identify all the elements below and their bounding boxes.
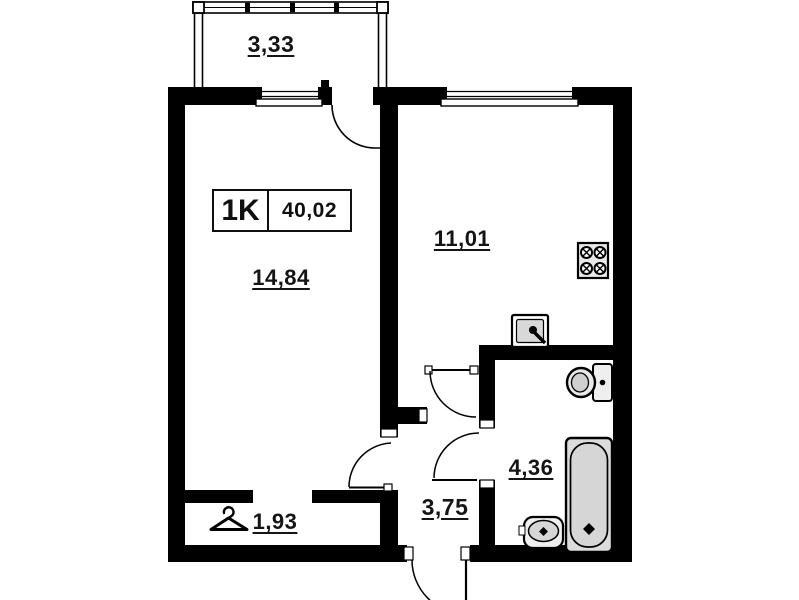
kitchen-sink-icon	[512, 315, 548, 347]
plan-canvas	[0, 0, 799, 600]
toilet-icon	[567, 364, 612, 401]
bathroom-door-swing	[432, 433, 479, 480]
room-label-closet: 1,93	[253, 509, 298, 535]
entrance-door-swing	[412, 560, 466, 600]
room-label-living-room: 14,84	[252, 265, 310, 291]
unit-info-box: 1K 40,02	[212, 189, 352, 232]
unit-total-area: 40,02	[269, 191, 350, 230]
unit-type-label: 1K	[214, 191, 269, 230]
balcony-door-swing	[332, 105, 380, 148]
washbasin-icon	[519, 517, 563, 548]
walls	[168, 80, 632, 562]
room-label-hallway: 3,75	[422, 494, 469, 521]
stove-icon	[578, 243, 608, 278]
room-label-kitchen: 11,01	[434, 226, 490, 252]
floor-plan: 1K 40,02 3,33 14,84 11,01 4,36 3,75 1,93	[0, 0, 799, 600]
kitchen-window	[441, 92, 578, 107]
kitchen-door-swing	[430, 370, 476, 417]
hanger-icon	[211, 507, 247, 529]
living-room-window	[256, 92, 322, 107]
living-room-door-swing	[349, 443, 391, 488]
room-label-bathroom: 4,36	[509, 455, 554, 481]
room-label-balcony: 3,33	[248, 31, 295, 58]
bathtub-icon	[566, 438, 612, 552]
